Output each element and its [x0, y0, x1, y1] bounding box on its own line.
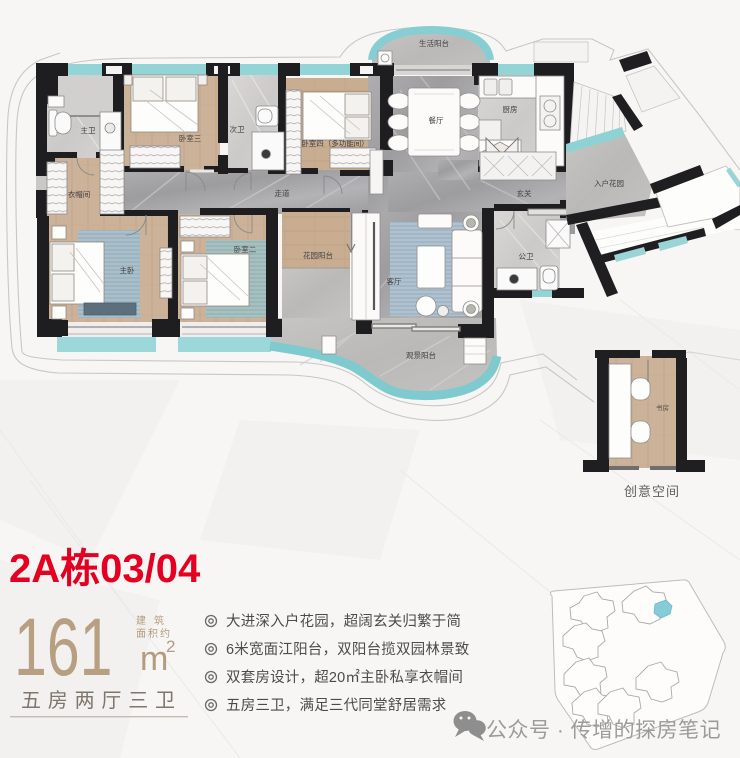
svg-text:观景阳台: 观景阳台 — [406, 350, 436, 360]
svg-text:客厅: 客厅 — [387, 276, 402, 286]
svg-text:161: 161 — [14, 602, 113, 694]
svg-text:大进深入户花园，超阔玄关归繁于简: 大进深入户花园，超阔玄关归繁于简 — [226, 613, 461, 630]
svg-text:2: 2 — [166, 637, 175, 656]
svg-text:书房: 书房 — [656, 403, 669, 412]
svg-text:2A栋03/04: 2A栋03/04 — [9, 547, 201, 591]
svg-text:五房两厅三卫: 五房两厅三卫 — [21, 689, 182, 712]
svg-text:创意空间: 创意空间 — [624, 484, 680, 499]
svg-text:次卫: 次卫 — [230, 124, 245, 134]
svg-text:卧室二: 卧室二 — [234, 244, 257, 254]
svg-text:公卫: 公卫 — [519, 252, 534, 261]
svg-text:花园阳台: 花园阳台 — [303, 250, 333, 260]
svg-text:五房三卫，满足三代同堂舒居需求: 五房三卫，满足三代同堂舒居需求 — [226, 697, 447, 714]
svg-text:6米宽面江阳台，双阳台揽双园林景致: 6米宽面江阳台，双阳台揽双园林景致 — [226, 641, 470, 658]
svg-text:餐厅: 餐厅 — [429, 116, 444, 125]
svg-text:双套房设计，超20㎡主卧私享衣帽间: 双套房设计，超20㎡主卧私享衣帽间 — [226, 669, 463, 686]
svg-text:玄关: 玄关 — [517, 188, 532, 198]
svg-text:m: m — [140, 640, 168, 678]
svg-text:主卧: 主卧 — [120, 265, 135, 275]
svg-text:厨房: 厨房 — [503, 104, 518, 114]
svg-text:公众号 · 传增的探房笔记: 公众号 · 传增的探房笔记 — [486, 719, 721, 742]
svg-text:建筑: 建筑 — [136, 614, 172, 627]
svg-text:衣帽间: 衣帽间 — [68, 189, 91, 199]
svg-text:生活阳台: 生活阳台 — [419, 38, 449, 48]
svg-text:走道: 走道 — [275, 188, 290, 198]
svg-text:卧室三: 卧室三 — [179, 133, 202, 143]
svg-text:入户花园: 入户花园 — [594, 178, 624, 188]
svg-text:卧室四（多功能间）: 卧室四（多功能间） — [301, 138, 369, 148]
svg-text:主卫: 主卫 — [81, 125, 96, 135]
